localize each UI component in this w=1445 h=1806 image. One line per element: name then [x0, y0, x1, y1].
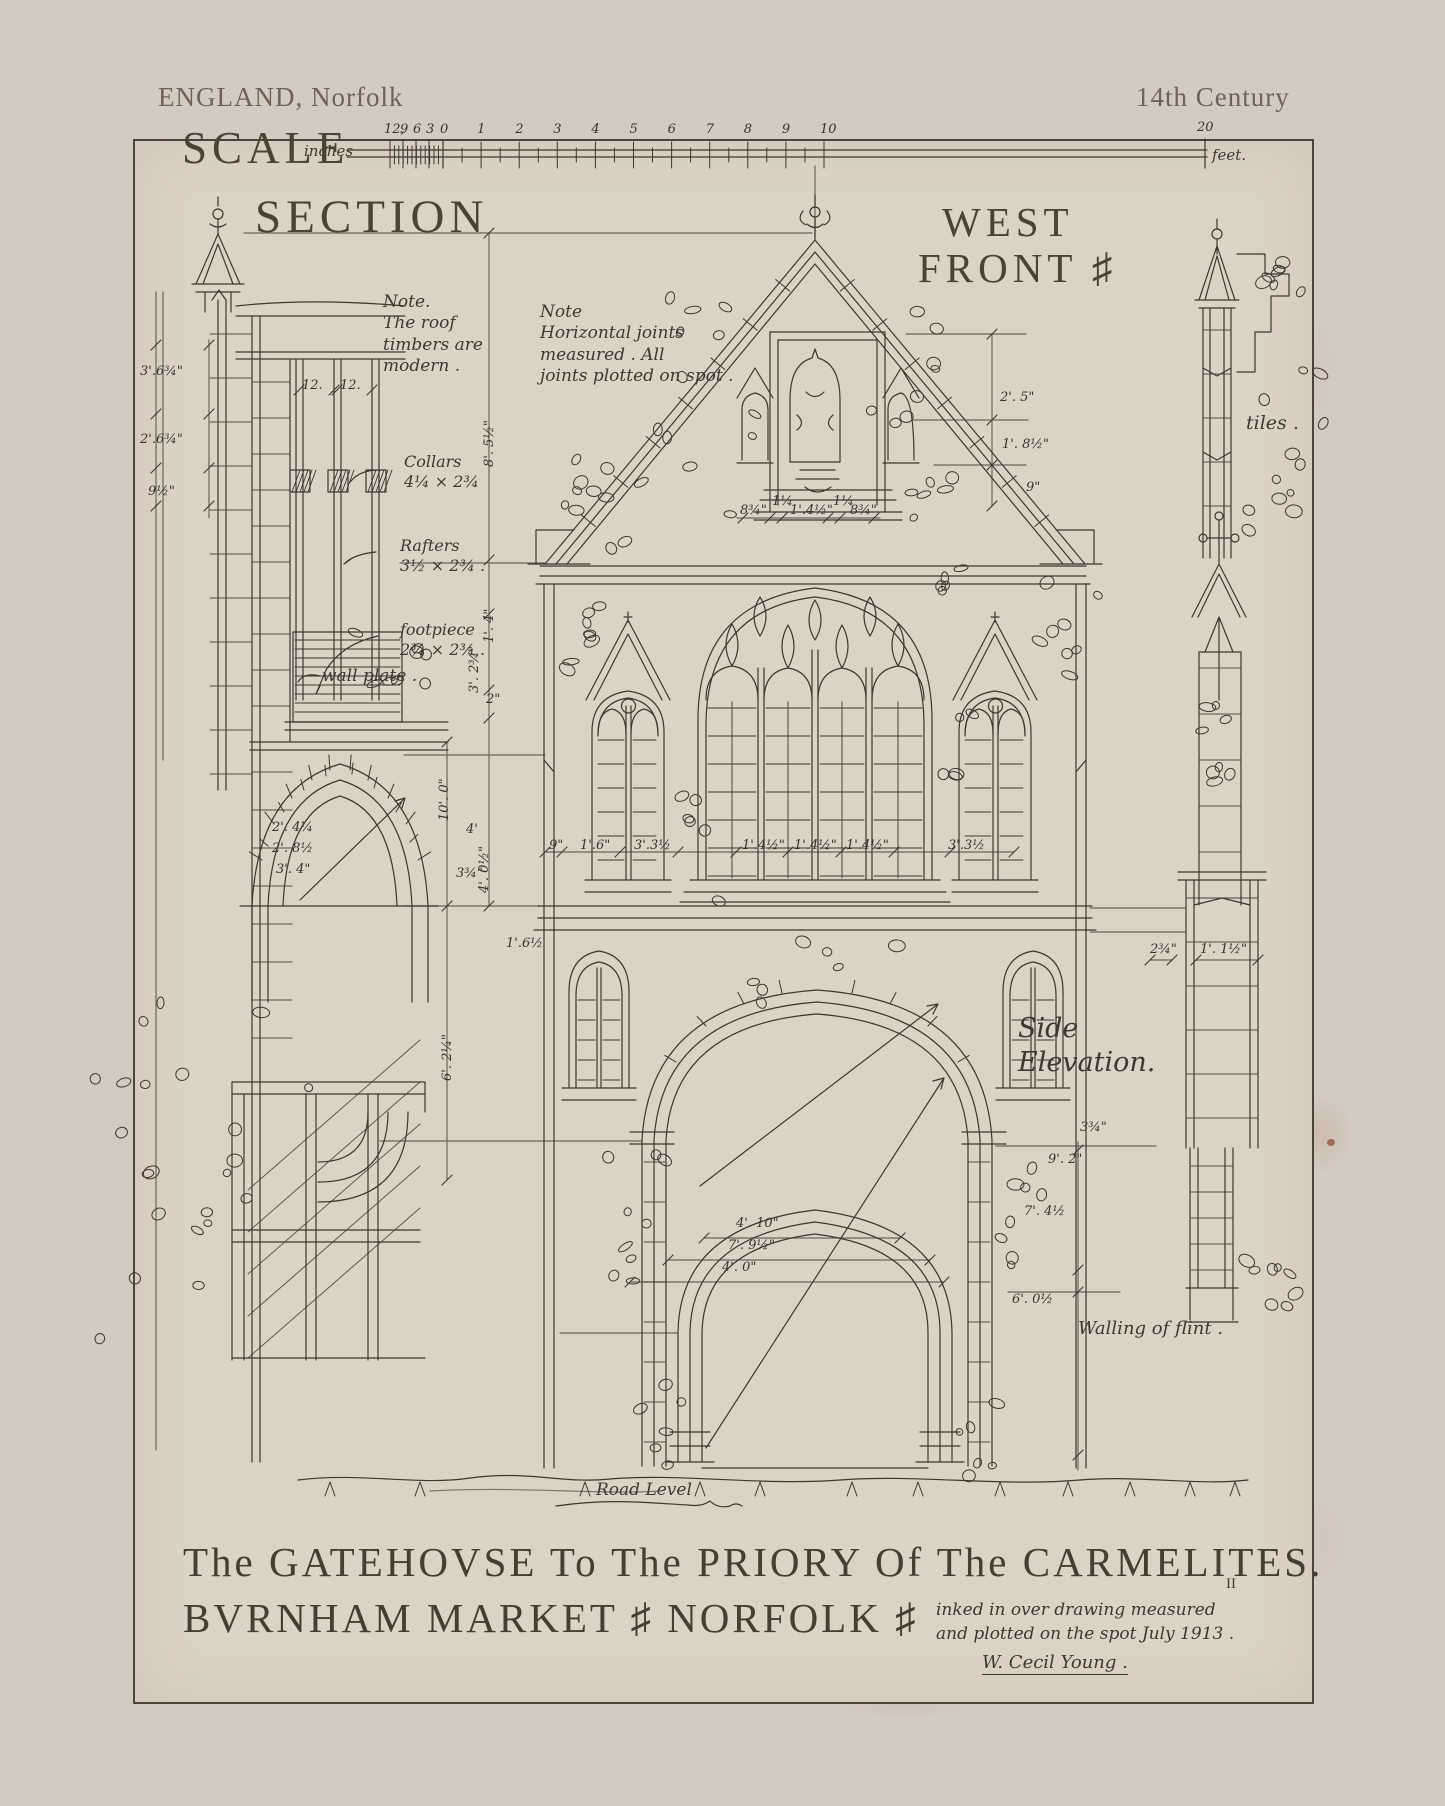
dimension-label: 6'. 0½ — [1012, 1292, 1053, 1307]
scale-tick-label: 8 — [744, 122, 752, 137]
credit-note-line1: inked in over drawing measured — [936, 1600, 1216, 1621]
walling-label: Walling of flint . — [1078, 1318, 1223, 1341]
scale-tick-label: 0 — [440, 122, 448, 137]
scale-ruler — [347, 139, 1207, 168]
dimension-label: 1'.4½" — [846, 838, 889, 853]
dimension-label: 3'.6¾" — [140, 364, 183, 379]
signature: W. Cecil Young . — [982, 1652, 1128, 1675]
roof-note: Note. The roof timbers are modern . — [383, 292, 483, 377]
scale-tick-label: 9 — [400, 122, 408, 137]
drawing-sheet: { "header": { "left": "ENGLAND, Norfolk"… — [0, 0, 1445, 1806]
main-title-mark: II — [1226, 1576, 1236, 1593]
dimension-label: 3'.3½ — [634, 838, 671, 853]
dimension-label: 8¾" — [740, 503, 767, 518]
road-level-label: Road Level — [596, 1480, 692, 1501]
scale-tick-label: 9 — [782, 122, 790, 137]
joints-note: Note Horizontal joints measured . All jo… — [540, 302, 733, 387]
scale-end-label: 20 — [1197, 120, 1214, 135]
dimension-label: 9" — [1026, 480, 1040, 495]
tiles-label: tiles . — [1246, 412, 1299, 436]
dimension-label: 1'. 1½" — [1200, 942, 1247, 957]
scale-tick-label: 2 — [515, 122, 523, 137]
scale-tick-label: 5 — [630, 122, 638, 137]
dimension-label: 1'.6" — [580, 838, 610, 853]
scale-tick-label: 1 — [477, 122, 485, 137]
dimension-label: 1'.4½" — [742, 838, 785, 853]
dimension-label: 9" — [549, 838, 563, 853]
dimension-label: 8¾" — [850, 503, 877, 518]
dimension-label: 12. — [340, 378, 361, 393]
dimension-label: 4'. 0" — [722, 1260, 756, 1275]
dimension-label: 9'. 2" — [1048, 1152, 1082, 1167]
section-title: SECTION — [255, 190, 488, 244]
main-title-line2: BVRNHAM MARKET ♯ NORFOLK ♯ — [183, 1594, 919, 1642]
dimension-label: 1'. 4" — [482, 609, 497, 643]
scale-tick-label: 7 — [706, 122, 714, 137]
scale-tick-label: 6 — [413, 122, 421, 137]
dimension-label: 4'. 10" — [736, 1216, 779, 1231]
flint-rubble-stones — [88, 256, 1330, 1482]
scale-feet-label: feet. — [1212, 146, 1246, 165]
dimension-label: 9½" — [148, 484, 175, 499]
scale-tick-label: 6 — [668, 122, 676, 137]
dimension-label: 3'. 4" — [276, 862, 310, 877]
scale-inches-label: inches — [304, 142, 353, 161]
dimension-label: 7'. 9½" — [728, 1238, 775, 1253]
scale-tick-label: 3 — [426, 122, 434, 137]
dimension-label: 10'. 0" — [437, 778, 452, 821]
scale-tick-label: 4 — [591, 122, 599, 137]
dimension-label: 1'.4½" — [790, 503, 833, 518]
wall-plate-label: wall plate . — [322, 666, 417, 687]
side-elevation-title: Side Elevation. — [1018, 1012, 1155, 1080]
dimension-label: 6'. 2¼" — [440, 1034, 455, 1081]
scale-tick-label: 3 — [553, 122, 561, 137]
dimension-label: 2'. 8½ — [272, 841, 313, 856]
dimension-label: 4' — [466, 822, 478, 837]
dimension-label: 8'. 5½" — [482, 420, 497, 467]
west-front-title-line2: FRONT ♯ — [918, 244, 1117, 292]
dimension-label: 2" — [486, 692, 500, 707]
dimension-label: 12. — [302, 378, 323, 393]
dimension-label: 7'. 4½ — [1024, 1204, 1065, 1219]
dimension-label: 2'.6¾" — [140, 432, 183, 447]
dimension-label: 2'. 5" — [1000, 390, 1034, 405]
west-front-title-line1: WEST — [942, 198, 1074, 246]
collars-label: Collars 4¼ × 2¾ — [404, 452, 479, 492]
dimension-label: 3¾" — [1080, 1120, 1107, 1135]
dimension-label: 1'.6½ — [506, 936, 543, 951]
scale-tick-label: 10 — [820, 122, 837, 137]
dimension-label: 3'. 2¾" — [467, 646, 482, 693]
dimension-label: 1'. 8½" — [1002, 437, 1049, 452]
dimension-label: 2'. 4¼ — [272, 820, 313, 835]
main-title-line1: The GATEHOVSE To The PRIORY Of The CARME… — [183, 1538, 1323, 1586]
side-elevation-drawing — [1178, 219, 1289, 1322]
rafters-label: Rafters 3½ × 2¾ . — [400, 536, 485, 576]
dimension-label: 3'.3½ — [948, 838, 985, 853]
dimension-label: 2¾" — [1150, 942, 1177, 957]
dimension-label: 1'.4½" — [794, 838, 837, 853]
drawing-linework — [0, 0, 1445, 1806]
dimension-label: 3¾" — [456, 866, 483, 881]
credit-note-line2: and plotted on the spot July 1913 . — [936, 1624, 1234, 1645]
